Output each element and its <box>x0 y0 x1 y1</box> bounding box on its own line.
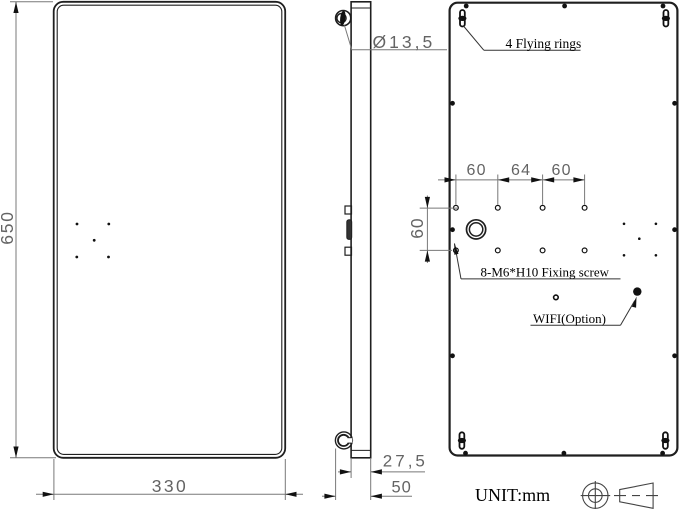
svg-text:330: 330 <box>152 476 188 496</box>
svg-text:50: 50 <box>392 479 412 497</box>
svg-text:4 Flying rings: 4 Flying rings <box>506 36 582 51</box>
svg-text:650: 650 <box>0 210 17 245</box>
svg-text:60: 60 <box>467 162 487 179</box>
svg-text:UNIT:mm: UNIT:mm <box>475 485 550 505</box>
svg-text:Ø13,5: Ø13,5 <box>373 32 436 52</box>
svg-text:60: 60 <box>407 217 427 238</box>
svg-text:27,5: 27,5 <box>383 452 428 471</box>
svg-text:60: 60 <box>552 162 572 179</box>
svg-text:64: 64 <box>511 162 531 179</box>
svg-text:WIFI(Option): WIFI(Option) <box>533 311 606 326</box>
svg-text:8-M6*H10 Fixing screw: 8-M6*H10 Fixing screw <box>481 265 610 280</box>
